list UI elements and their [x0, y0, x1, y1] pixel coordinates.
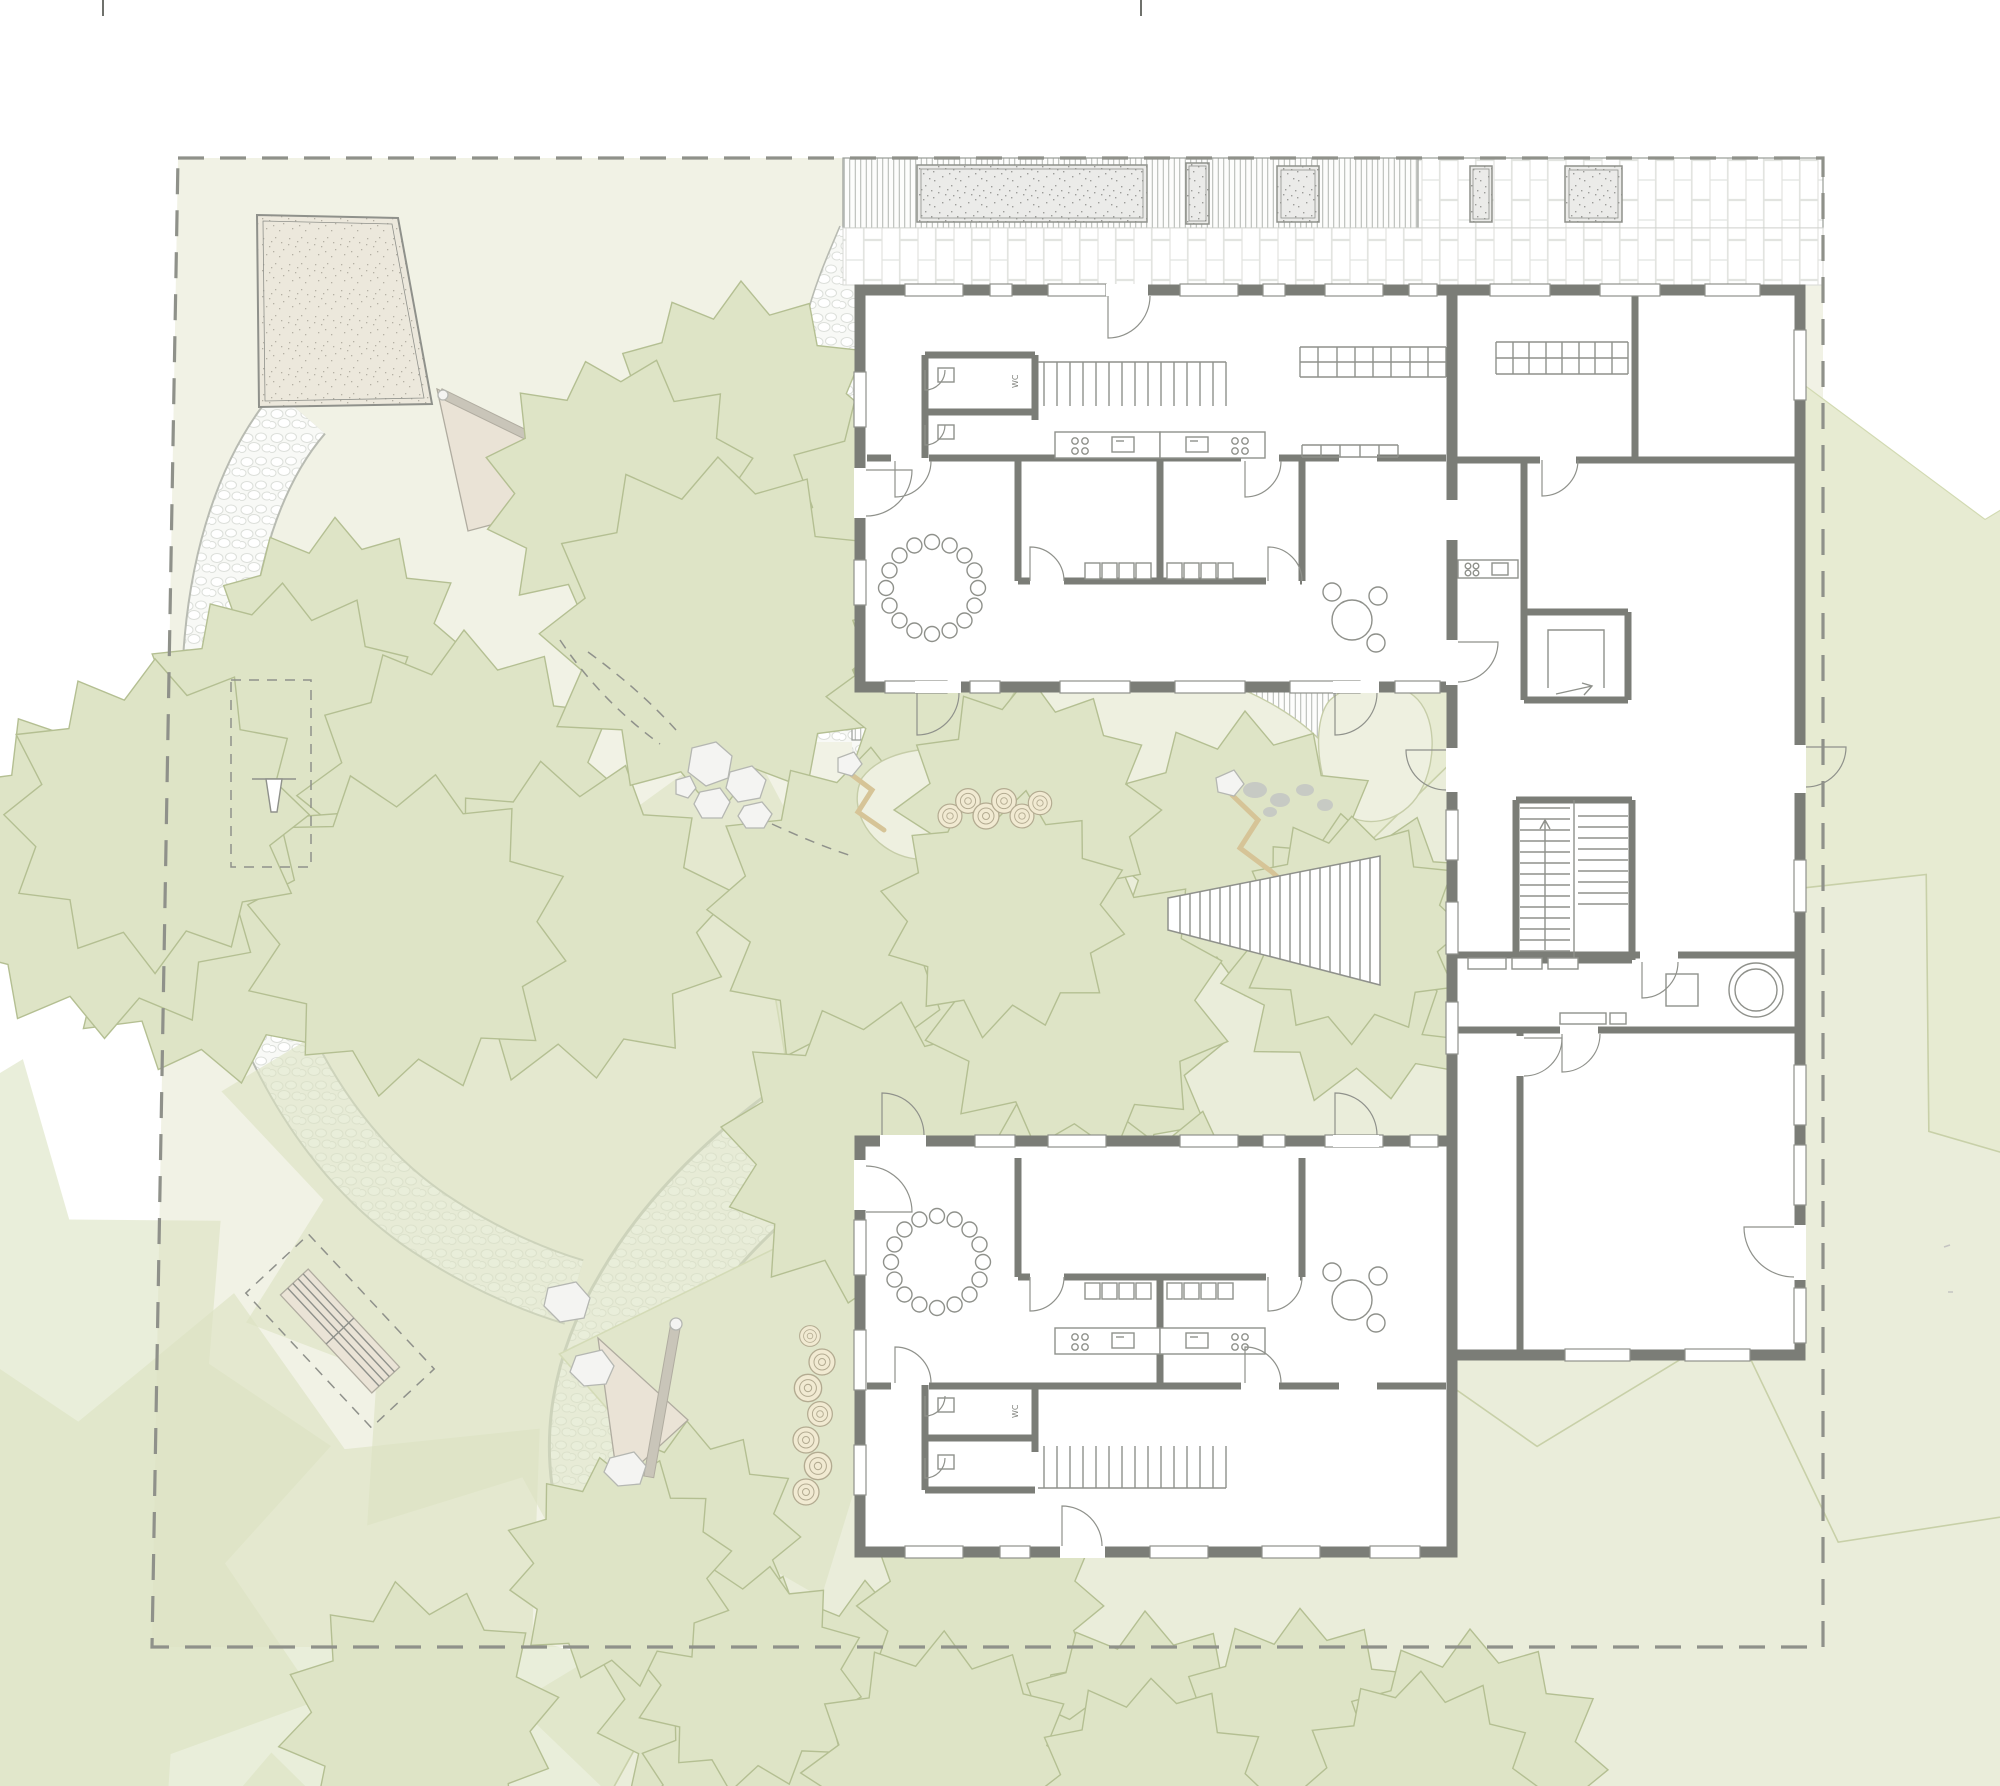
wc-label: WC	[1011, 1404, 1020, 1418]
south-wing: WC	[854, 1093, 1452, 1558]
site-plan-drawing: WC	[0, 0, 2000, 1786]
kitchen-counters-south	[1055, 1328, 1265, 1354]
kitchen-counters-north	[1055, 432, 1265, 458]
wc-label: WC	[1011, 374, 1020, 388]
kitchenette	[1458, 560, 1518, 578]
site-plan-page: WC	[0, 0, 2000, 1786]
brick-walkway-top	[843, 228, 1823, 285]
crop-marks	[103, 0, 1141, 16]
east-wing	[1406, 284, 1846, 1361]
north-wing: WC	[854, 284, 1452, 735]
